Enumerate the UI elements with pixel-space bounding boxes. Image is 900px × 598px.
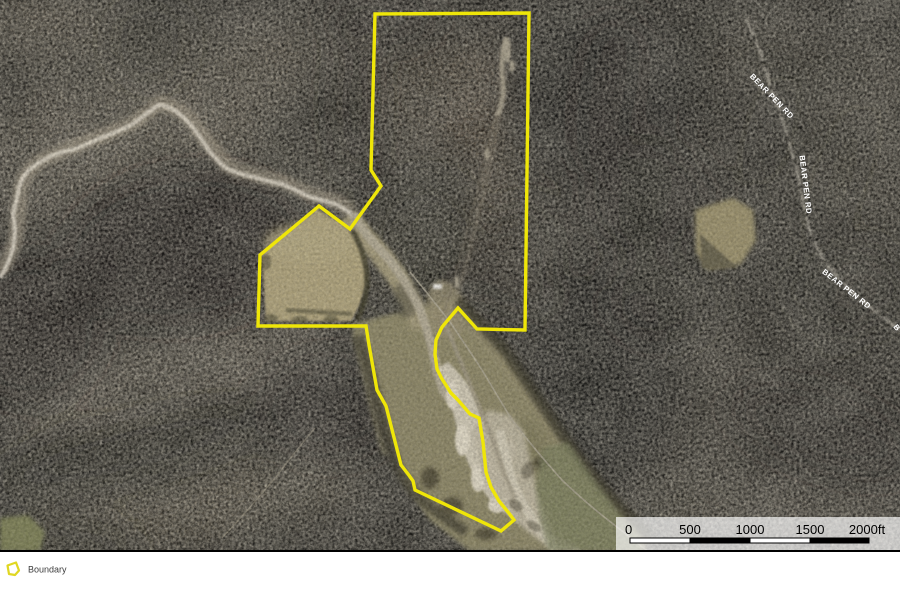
svg-text:500: 500 xyxy=(679,522,701,537)
svg-text:1500: 1500 xyxy=(796,522,825,537)
svg-text:2000ft: 2000ft xyxy=(849,522,886,537)
svg-text:0: 0 xyxy=(625,522,632,537)
svg-text:Boundary: Boundary xyxy=(28,565,67,575)
svg-text:1000: 1000 xyxy=(736,522,765,537)
